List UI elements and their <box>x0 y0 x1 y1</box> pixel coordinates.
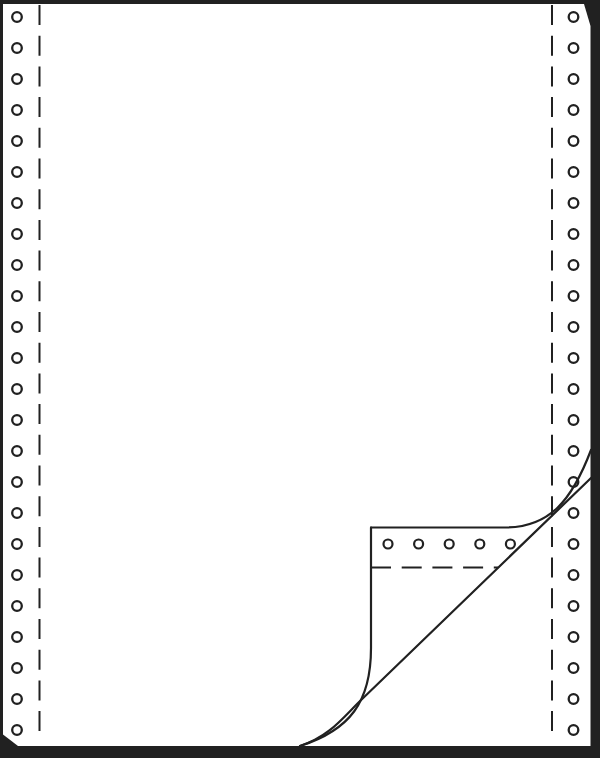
sprocket-hole <box>569 136 579 146</box>
sprocket-hole <box>12 446 22 456</box>
flap-sprocket-hole <box>384 540 393 549</box>
sprocket-hole <box>12 663 22 673</box>
sprocket-hole <box>569 322 579 332</box>
sprocket-hole <box>12 725 22 735</box>
sprocket-hole <box>12 570 22 580</box>
sprocket-hole <box>12 229 22 239</box>
sprocket-hole <box>12 291 22 301</box>
sprocket-hole <box>569 415 579 425</box>
sprocket-hole <box>12 322 22 332</box>
sprocket-hole <box>12 539 22 549</box>
sprocket-hole <box>12 508 22 518</box>
sprocket-hole <box>12 136 22 146</box>
sprocket-hole <box>569 632 579 642</box>
sprocket-hole <box>12 415 22 425</box>
sprocket-hole <box>12 43 22 53</box>
sprocket-hole <box>12 632 22 642</box>
sprocket-hole <box>569 198 579 208</box>
paper-sheet <box>3 4 591 746</box>
sprocket-hole <box>569 229 579 239</box>
sprocket-hole <box>569 43 579 53</box>
sprocket-hole <box>569 260 579 270</box>
sprocket-hole <box>569 105 579 115</box>
sprocket-hole <box>569 167 579 177</box>
sprocket-hole <box>569 725 579 735</box>
sprocket-hole <box>12 353 22 363</box>
flap-sprocket-hole <box>475 540 484 549</box>
flap-sprocket-hole <box>414 540 423 549</box>
sprocket-hole <box>569 353 579 363</box>
continuous-paper-illustration <box>0 0 600 758</box>
sprocket-hole <box>12 105 22 115</box>
sprocket-hole <box>12 601 22 611</box>
sprocket-hole <box>569 12 579 22</box>
sprocket-hole <box>569 508 579 518</box>
sprocket-hole <box>12 477 22 487</box>
sprocket-hole <box>12 167 22 177</box>
sprocket-hole <box>569 601 579 611</box>
sprocket-hole <box>12 74 22 84</box>
flap-sprocket-hole <box>445 540 454 549</box>
flap-sprocket-hole <box>506 540 515 549</box>
sprocket-hole <box>569 446 579 456</box>
sprocket-hole <box>569 539 579 549</box>
product-image-stage <box>0 0 600 758</box>
sprocket-hole <box>569 74 579 84</box>
sprocket-hole <box>569 384 579 394</box>
sprocket-hole <box>12 198 22 208</box>
sprocket-hole <box>12 260 22 270</box>
sprocket-hole <box>12 12 22 22</box>
sprocket-hole <box>569 570 579 580</box>
sprocket-hole <box>12 694 22 704</box>
sprocket-hole <box>12 384 22 394</box>
sprocket-hole <box>569 663 579 673</box>
sprocket-hole <box>569 291 579 301</box>
sprocket-hole <box>569 694 579 704</box>
